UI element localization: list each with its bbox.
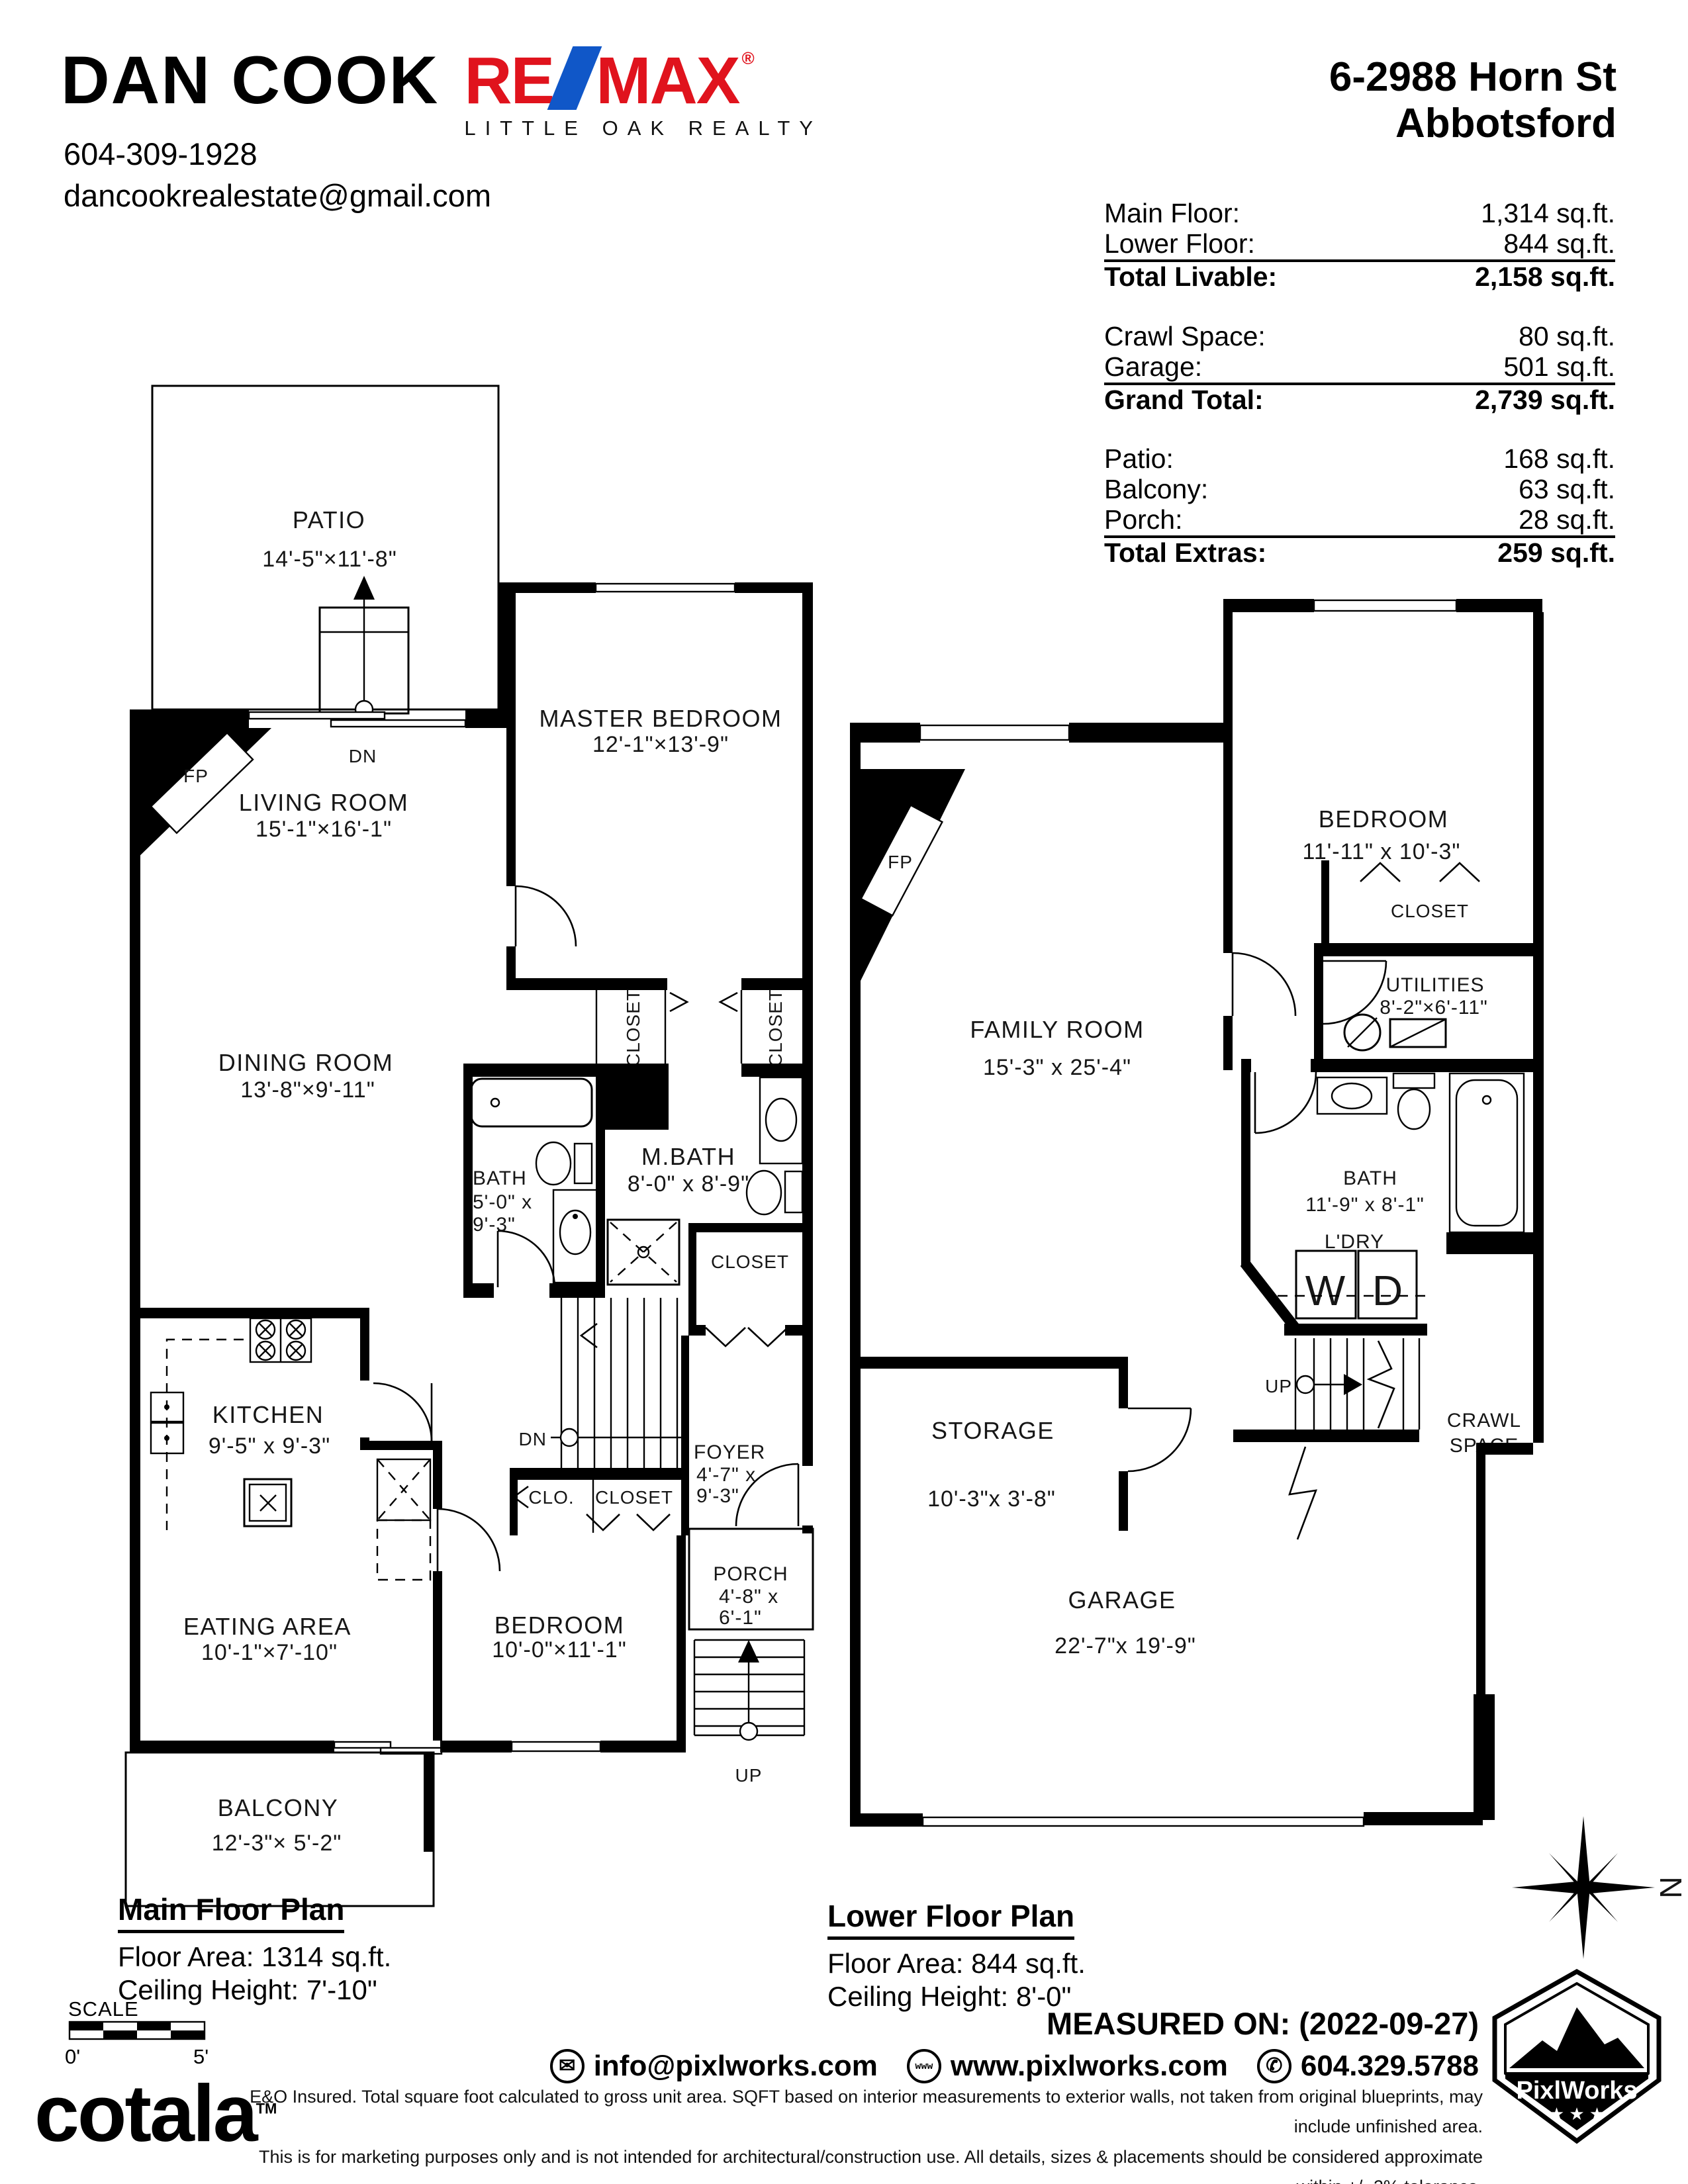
bath-lower: BATH 11'-9" x 8'-1" L'DRY W D [1241,1059,1542,1336]
up-arrow [738,1640,759,1662]
room-dims: 15'-3" x 25'-4" [983,1055,1131,1080]
lower-floor-caption: Lower Floor Plan Floor Area: 844 sq.ft. … [827,1898,1086,2013]
clo-label: CLO. [528,1487,574,1508]
contact-phone-text: 604.329.5788 [1301,2050,1479,2083]
room-label: GARAGE [1068,1586,1176,1614]
toilet [1393,1073,1434,1088]
room-label: DINING ROOM [218,1049,394,1076]
caption-area: Floor Area: 844 sq.ft. [827,1948,1086,1979]
closet-label: CLOSET [711,1251,789,1272]
closet-label: CLOSET [623,989,643,1067]
closet-label: CLOSET [765,989,786,1067]
contact-phone: ✆ 604.329.5788 [1257,2049,1479,2083]
room-dims: 8'-0" x 8'-9" [628,1171,749,1197]
up-arrow [1344,1374,1362,1395]
room-label: BEDROOM [494,1612,625,1639]
room-dims: 6'-1" [719,1607,762,1629]
bathtub [471,1079,592,1126]
room-dims: 10'-1"×7'-10" [201,1640,338,1665]
stars-icon: ★ ★ ★ [1549,2104,1605,2124]
pixlworks-logo: PixlWorks ★ ★ ★ [1495,1972,1659,2141]
fp-label: FP [183,766,209,786]
floor-plan-sheet: DAN COOK RE MAX ® LITTLE OAK REALTY 604-… [0,0,1688,2184]
floor-plan-drawing: PATIO 14'-5"×11'-8" DN [0,0,1688,2184]
room-label: KITCHEN [212,1401,324,1428]
bath-cluster: BATH 5'-0" x 9'-3" M.BATH 8'-0" x 8'-9" [463,1064,802,1346]
disclaimer-line1: E&O Insured. Total square foot calculate… [222,2082,1483,2142]
room-dims: 9'-3" [473,1214,516,1236]
room-label: BATH [1343,1167,1397,1189]
dn-label: DN [349,746,377,766]
globe-icon: www [907,2049,941,2083]
room-label: BATH [473,1167,527,1189]
room-dims: 4'-8" x [719,1586,778,1608]
porch: PORCH 4'-8" x 6'-1" UP [689,1529,813,1786]
scale-zero: 0' [65,2045,80,2069]
lower-floor-plan: FP BEDROOM 11'-11" x 10'-3" CLOSET [850,599,1544,1827]
room-label: BALCONY [218,1794,339,1821]
room-dims: 10'-3"x 3'-8" [927,1486,1056,1512]
room-label: M.BATH [641,1143,735,1170]
storage: STORAGE 10'-3"x 3'-8" [850,1357,1191,1531]
room-dims: 11'-9" x 8'-1" [1305,1194,1425,1216]
bathtub [1450,1073,1524,1232]
envelope-icon: ✉ [550,2049,585,2083]
fp-label: FP [888,852,913,872]
closet-lower: CLOSET [1321,860,1479,943]
main-floor-caption: Main Floor Plan Floor Area: 1314 sq.ft. … [118,1891,391,2006]
room-dims: 9'-5" x 9'-3" [209,1433,330,1459]
laundry-label: L'DRY [1325,1231,1384,1253]
room-dims: 4'-7" x [696,1464,756,1486]
room-dims: 12'-1"×13'-9" [592,732,729,757]
room-label: FOYER [694,1441,765,1463]
patio: PATIO 14'-5"×11'-8" DN [152,386,498,766]
measured-on: MEASURED ON: (2022-09-27) [1047,2005,1479,2042]
room-label: PORCH [713,1563,788,1585]
room-label: PATIO [293,506,365,533]
room-dims: 14'-5"×11'-8" [262,547,397,572]
room-dims: 22'-7"x 19'-9" [1055,1633,1196,1659]
master-bedroom: MASTER BEDROOM 12'-1"×13'-9" [506,593,782,978]
garage-door [923,1817,1364,1826]
room-dims: 5'-0" x [473,1191,532,1213]
master-closets: CLOSET CLOSET [506,978,813,1067]
caption-area: Floor Area: 1314 sq.ft. [118,1941,391,1973]
room-dims: 8'-2"×6'-11" [1380,997,1487,1019]
room-dims: 13'-8"×9'-11" [240,1077,375,1103]
up-label: UP [1265,1376,1292,1396]
crawl-label: CRAWL [1447,1410,1521,1432]
dn-label: DN [519,1429,547,1449]
room-label: MASTER BEDROOM [539,705,782,732]
compass-rose: N [1512,1816,1688,1959]
room-dims: 10'-0"×11'-1" [492,1637,627,1662]
room-label: STORAGE [931,1417,1055,1444]
disclaimer-line2: This is for marketing purposes only and … [222,2142,1483,2184]
contact-email: ✉ info@pixlworks.com [550,2049,878,2083]
compass-north-label: N [1654,1876,1688,1898]
hall-closets: CLO. CLOSET [510,1468,689,1535]
caption-ceiling: Ceiling Height: 7'-10" [118,1974,391,2006]
utilities: UTILITIES 8'-2"×6'-11" [1314,943,1542,1059]
scale-five: 5' [193,2045,209,2069]
foyer: FOYER 4'-7" x 9'-3" [681,1336,798,1535]
toilet [575,1144,592,1183]
main-floor-plan: PATIO 14'-5"×11'-8" DN [126,386,813,1906]
room-label: BEDROOM [1319,805,1449,833]
toilet [785,1171,802,1212]
phone-icon: ✆ [1257,2049,1291,2083]
room-label: FAMILY ROOM [970,1016,1144,1043]
pixlworks-wordmark: PixlWorks [1516,2077,1637,2105]
main-stairs: DN [519,1298,688,1468]
closet-label: CLOSET [1391,901,1469,921]
room-label: EATING AREA [183,1613,352,1640]
pixlworks-contact-row: ✉ info@pixlworks.com www www.pixlworks.c… [550,2049,1479,2083]
contact-email-text: info@pixlworks.com [594,2050,878,2083]
patio-stair-arrow [353,576,375,600]
up-label: UP [735,1765,763,1786]
kitchen: KITCHEN 9'-5" x 9'-3" [130,1308,442,1530]
chase-shaft [377,1459,430,1580]
dryer-letter: D [1372,1267,1403,1314]
scale-bar [70,2022,205,2039]
caption-title: Lower Floor Plan [827,1898,1074,1940]
room-label: UTILITIES [1385,974,1484,996]
contact-web-text: www.pixlworks.com [951,2050,1228,2083]
room-label: LIVING ROOM [239,789,409,816]
room-dims: 9'-3" [696,1485,739,1507]
washer-letter: W [1305,1267,1346,1314]
caption-title: Main Floor Plan [118,1891,344,1933]
room-dims: 12'-3"× 5'-2" [212,1831,342,1856]
contact-web: www www.pixlworks.com [907,2049,1228,2083]
balcony: BALCONY 12'-3"× 5'-2" [126,1752,434,1906]
closet-label: CLOSET [595,1487,673,1508]
disclaimer: E&O Insured. Total square foot calculate… [222,2082,1483,2184]
fireplace-lower: FP [861,769,965,981]
room-dims: 15'-1"×16'-1" [256,817,392,842]
scale-label: SCALE [68,1997,139,2021]
